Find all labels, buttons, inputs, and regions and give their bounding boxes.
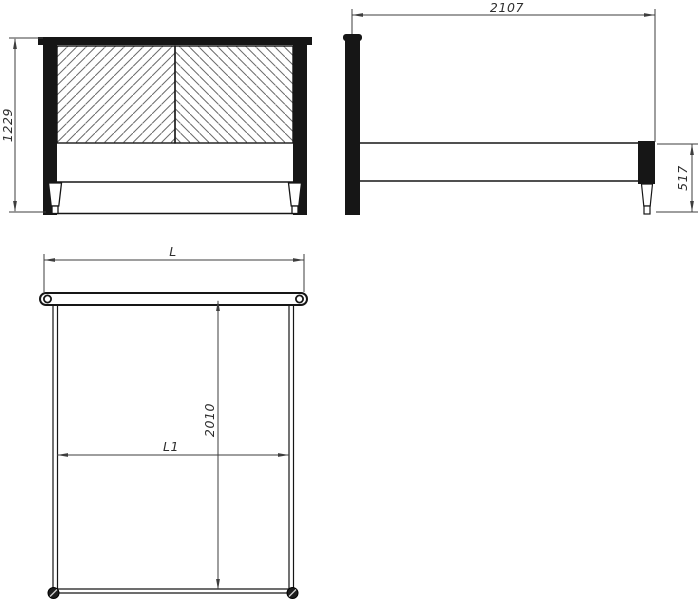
dimension-label-plan-width: L (169, 246, 177, 259)
headboard-panel-right-hatch (175, 46, 293, 143)
plan-bottom-right-leg (287, 588, 298, 599)
side-foot-post (638, 141, 655, 184)
dim-plan-inner-length (216, 300, 220, 590)
front-view (38, 37, 312, 215)
plan-headboard-bar (40, 293, 307, 305)
headboard-top-cap (38, 37, 312, 45)
side-foot-leg (642, 184, 653, 214)
dim-plan-width (44, 254, 304, 292)
dimension-label-side-frame-height: 517 (677, 165, 690, 191)
dimension-label-side-length: 2107 (490, 2, 524, 15)
plan-bottom-left-leg (48, 588, 59, 599)
headboard-panel-left-hatch (57, 46, 175, 143)
side-view (343, 34, 655, 215)
plan-top-left-leg (44, 295, 51, 302)
dimension-label-plan-inner-width: L1 (163, 441, 179, 454)
dim-side-length (352, 9, 655, 142)
bed-technical-drawing: 1229 2107 517 L 2010 L1 (0, 0, 700, 605)
side-headboard-post (345, 39, 360, 215)
technical-drawing-canvas (0, 0, 700, 605)
dimension-label-front-height: 1229 (2, 108, 15, 142)
dimension-label-plan-inner-length: 2010 (204, 403, 217, 437)
plan-top-right-leg (296, 295, 303, 302)
